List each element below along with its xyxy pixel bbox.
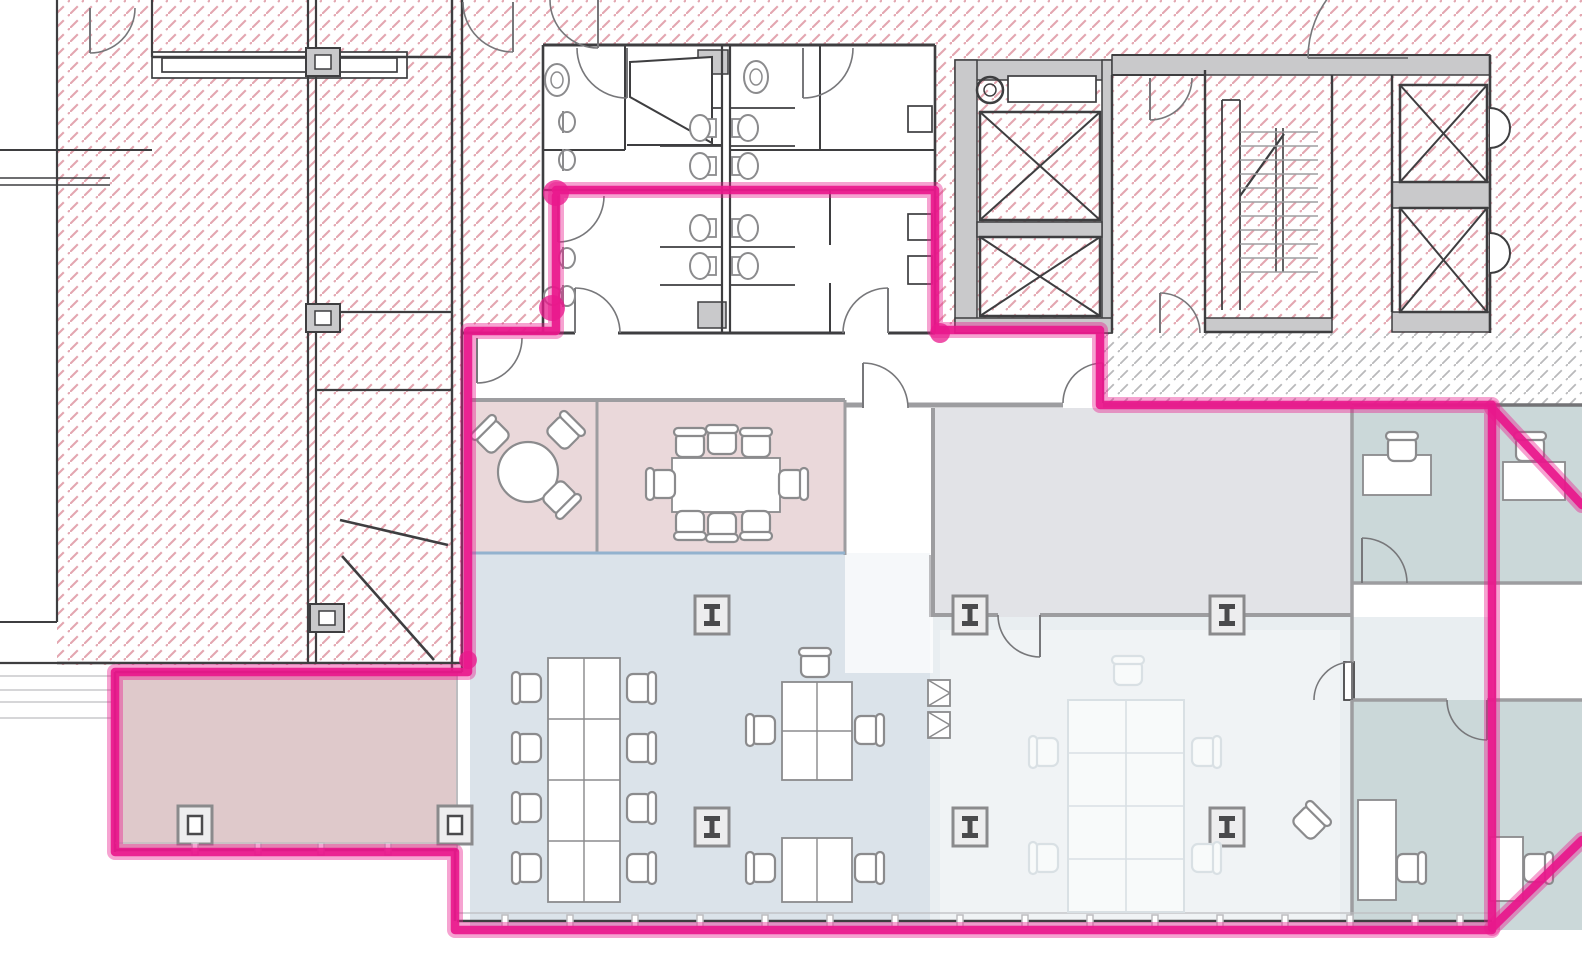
toilet: [738, 215, 758, 241]
toilet: [690, 215, 710, 241]
wall-block: [1392, 312, 1490, 332]
wall-block: [1102, 60, 1112, 333]
highlight-dot: [539, 295, 565, 321]
chair: [674, 511, 706, 540]
chair: [1386, 432, 1418, 461]
chair: [627, 672, 656, 704]
floor-plan-svg: [0, 0, 1582, 980]
hatch-region: [462, 45, 543, 333]
column-core: [315, 55, 331, 69]
panel-box: [928, 680, 950, 706]
chair: [746, 852, 775, 884]
column-ibeam-icon: [710, 821, 715, 833]
sink: [559, 150, 575, 170]
chair: [646, 468, 675, 500]
chair: [627, 792, 656, 824]
chair: [855, 852, 884, 884]
ghost-chair: [1192, 736, 1221, 768]
column-ibeam-icon: [1219, 604, 1235, 609]
column-ibeam-icon: [1219, 833, 1235, 838]
highlight-dot: [930, 323, 950, 343]
toilet: [738, 253, 758, 279]
column-ibeam-icon: [968, 821, 973, 833]
column-ibeam-icon: [704, 621, 720, 626]
wall-block: [1112, 55, 1490, 75]
wall-block: [1392, 182, 1490, 208]
column-ibeam-icon: [1219, 816, 1235, 821]
column-ibeam-icon: [704, 833, 720, 838]
column-ibeam-icon: [1225, 821, 1230, 833]
chair: [512, 792, 541, 824]
sink-basin: [744, 61, 768, 93]
wall-block: [977, 222, 1102, 237]
hatch-region: [462, 0, 960, 45]
ghost-chair: [1029, 842, 1058, 874]
desk: [1358, 800, 1396, 900]
chair: [740, 511, 772, 540]
hatch-region: [935, 0, 1582, 55]
highlight-dot: [543, 180, 569, 206]
highlight-dot: [459, 651, 477, 669]
column-ibeam-icon: [968, 609, 973, 621]
sink: [559, 112, 575, 132]
column-ibeam-icon: [710, 609, 715, 621]
column-ibeam-icon: [1219, 621, 1235, 626]
chair: [512, 732, 541, 764]
panel-box: [928, 712, 950, 738]
column-square-icon: [188, 816, 202, 834]
chair: [512, 672, 541, 704]
column-ibeam-icon: [1225, 609, 1230, 621]
chair: [799, 648, 831, 677]
column-ibeam-icon: [704, 816, 720, 821]
hatch-region: [1100, 333, 1582, 405]
toilet: [738, 115, 758, 141]
ghost-chair: [1112, 656, 1144, 685]
toilet: [690, 115, 710, 141]
column-ibeam-icon: [962, 816, 978, 821]
chair: [674, 428, 706, 457]
column-ibeam-icon: [962, 604, 978, 609]
chair: [746, 714, 775, 746]
zone-corner-room-pink: [115, 672, 457, 850]
column-ibeam-icon: [704, 604, 720, 609]
casework: [162, 58, 397, 72]
hatch-region: [1490, 0, 1582, 333]
zone-white-strip: [845, 403, 933, 673]
chair: [740, 428, 772, 457]
zone-storage-room-gray: [933, 408, 1352, 617]
chair: [512, 852, 541, 884]
column-ibeam-icon: [962, 833, 978, 838]
chair: [627, 732, 656, 764]
column-square-icon: [448, 816, 462, 834]
chair: [1397, 852, 1426, 884]
toilet: [690, 153, 710, 179]
floor-plan: [0, 0, 1582, 980]
toilet: [690, 253, 710, 279]
wall-block: [955, 60, 977, 333]
chair: [706, 513, 738, 542]
ghost-chair: [1192, 842, 1221, 874]
sink-basin: [545, 64, 569, 96]
desk: [672, 458, 780, 512]
toilet: [738, 153, 758, 179]
chair: [779, 468, 808, 500]
hatch-region: [57, 0, 462, 665]
chair: [627, 852, 656, 884]
chair: [855, 714, 884, 746]
column-core: [315, 311, 331, 325]
chair: [706, 425, 738, 454]
ghost-chair: [1029, 736, 1058, 768]
column-core: [319, 611, 335, 625]
column-ibeam-icon: [962, 621, 978, 626]
wall-block: [1205, 318, 1332, 332]
casework: [1008, 76, 1096, 102]
casework: [908, 106, 932, 132]
